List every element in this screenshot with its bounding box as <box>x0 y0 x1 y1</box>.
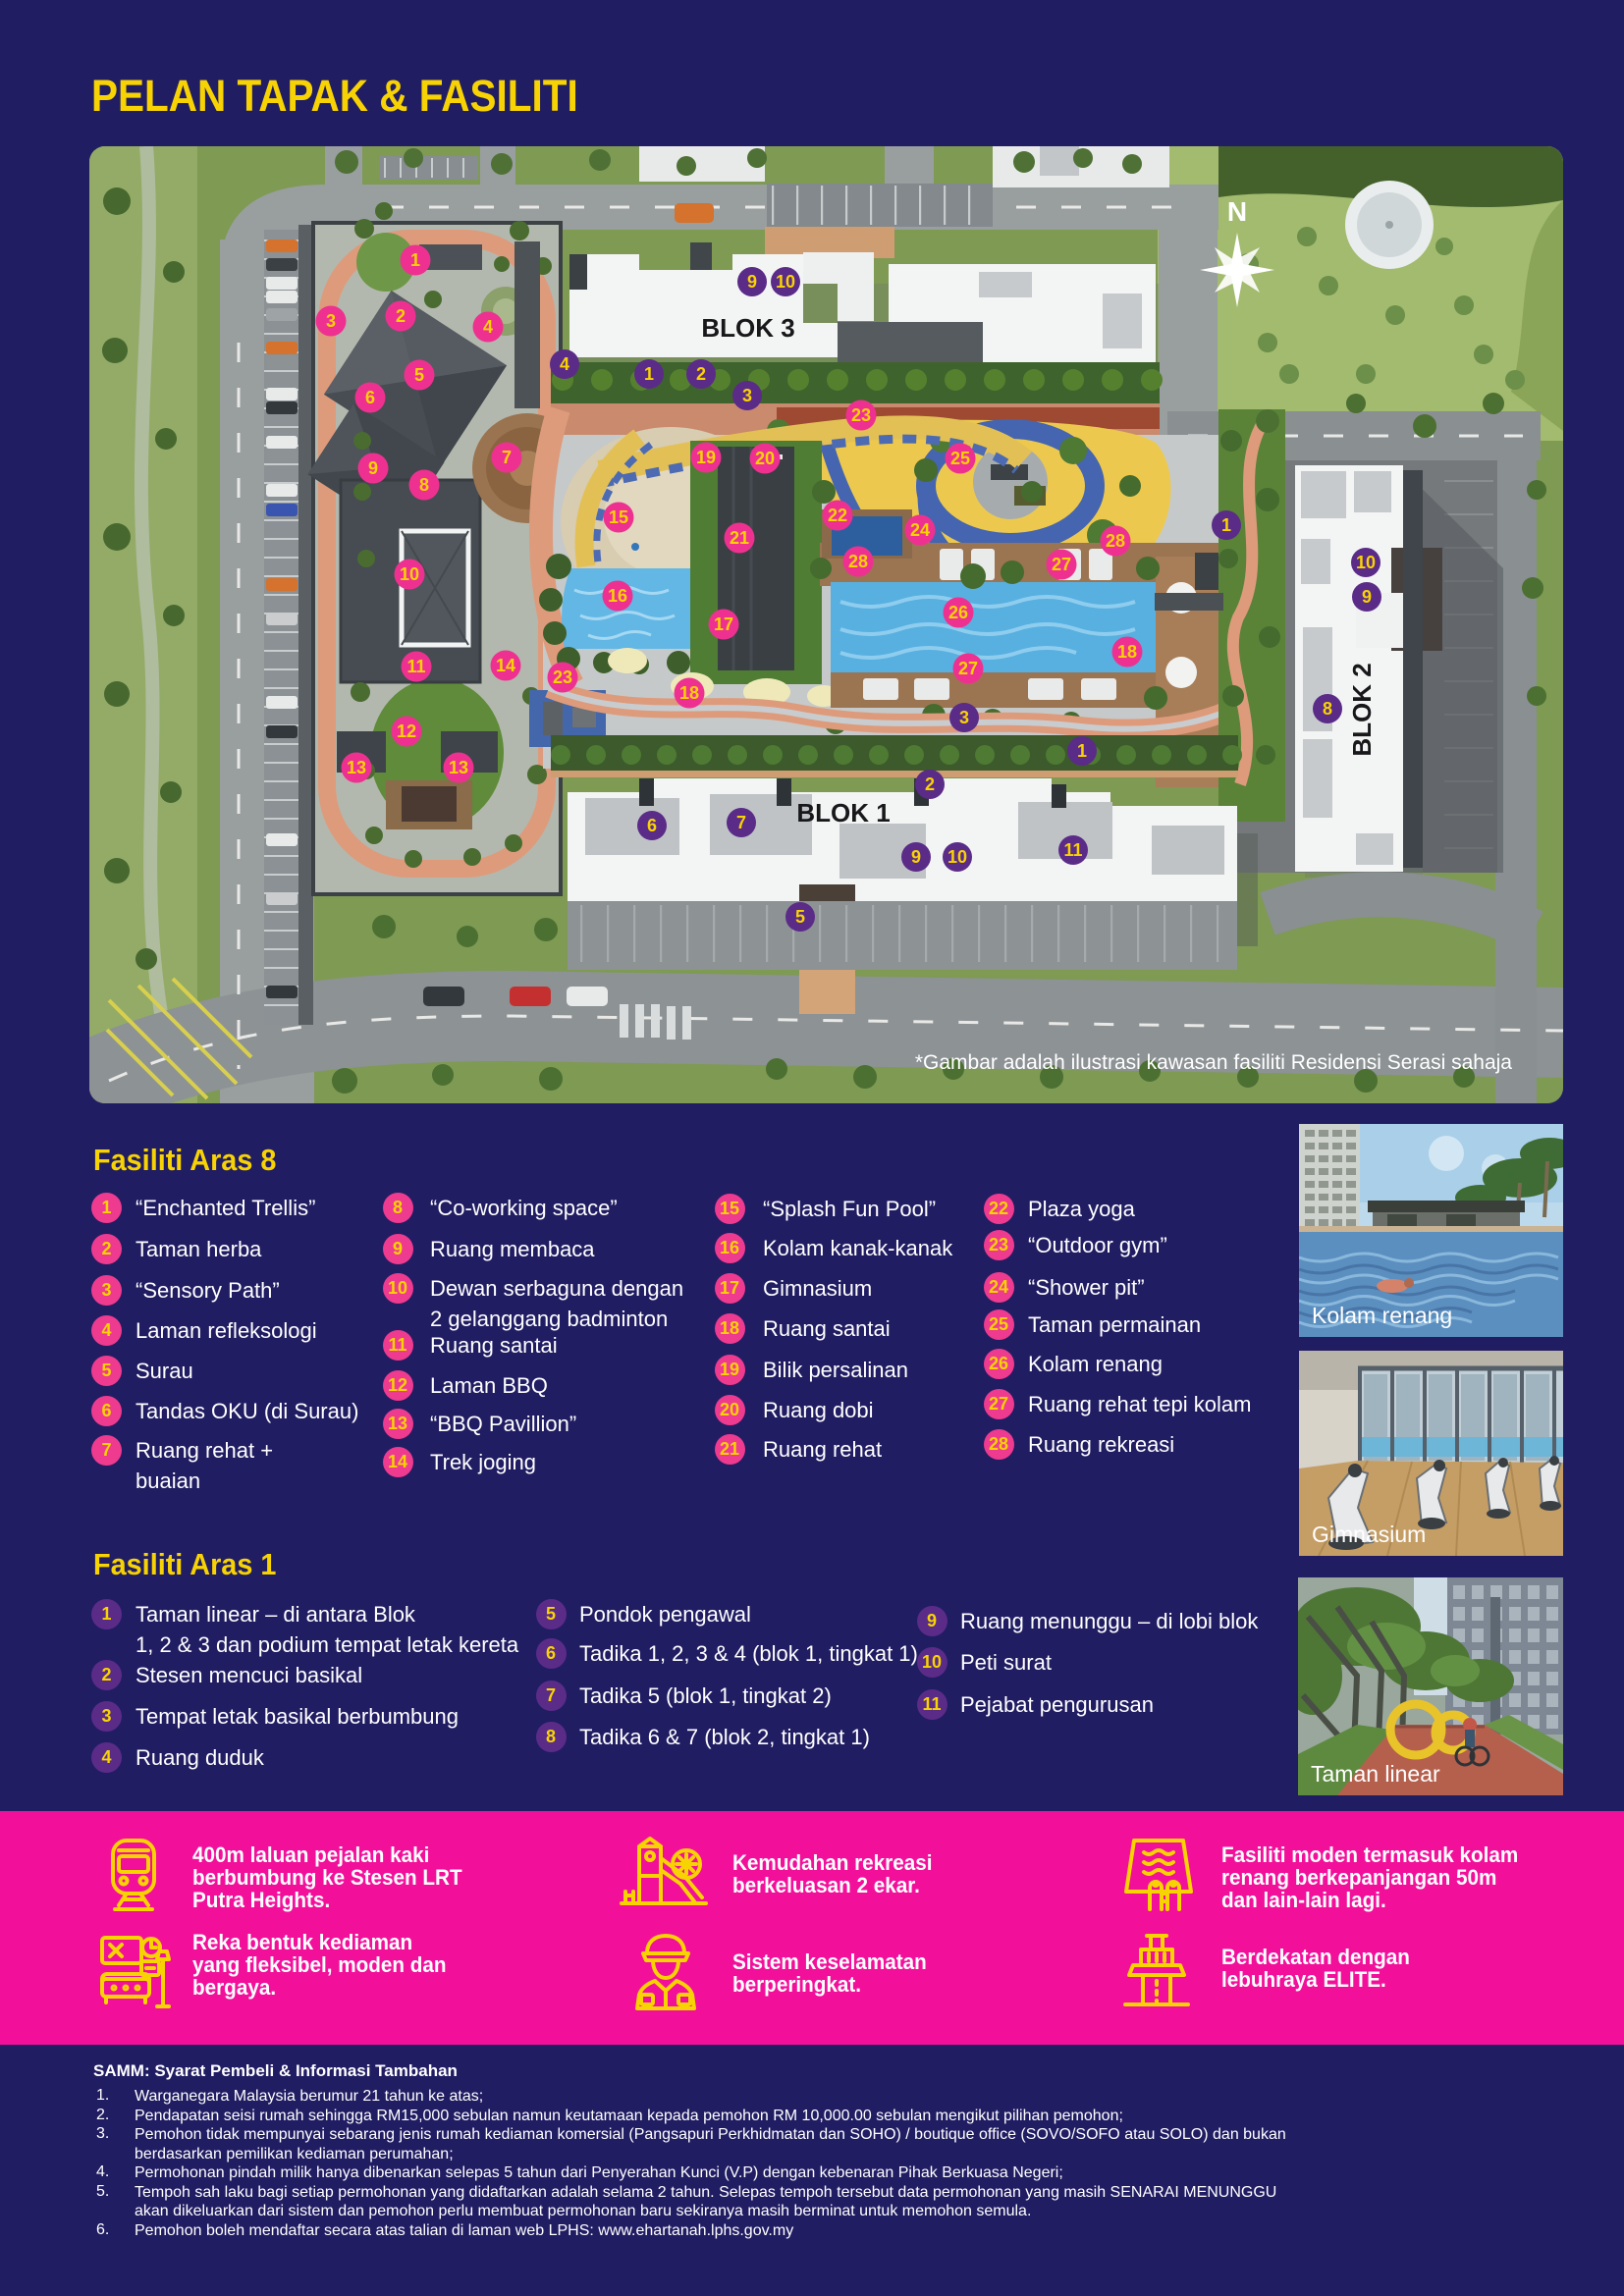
svg-text:1: 1 <box>410 250 420 270</box>
svg-text:6: 6 <box>647 816 657 835</box>
svg-text:27: 27 <box>958 659 978 678</box>
svg-text:22: 22 <box>828 506 847 525</box>
svg-text:23: 23 <box>851 405 871 425</box>
svg-text:*Gambar adalah ilustrasi kawas: *Gambar adalah ilustrasi kawasan fasilit… <box>915 1051 1512 1074</box>
svg-text:14: 14 <box>496 656 515 675</box>
svg-text:28: 28 <box>1106 531 1125 551</box>
svg-text:20: 20 <box>755 449 775 468</box>
svg-text:3: 3 <box>742 386 752 405</box>
svg-text:16: 16 <box>608 586 627 606</box>
svg-text:13: 13 <box>449 758 468 777</box>
svg-text:27: 27 <box>1052 555 1071 574</box>
svg-text:15: 15 <box>609 507 628 527</box>
svg-text:9: 9 <box>368 458 378 478</box>
svg-text:BLOK 3: BLOK 3 <box>701 313 794 343</box>
svg-text:10: 10 <box>947 847 967 867</box>
svg-text:1: 1 <box>644 364 654 384</box>
svg-text:11: 11 <box>1063 840 1082 860</box>
svg-text:19: 19 <box>696 448 716 467</box>
svg-text:9: 9 <box>747 272 757 292</box>
svg-text:5: 5 <box>414 365 424 385</box>
svg-text:BLOK 1: BLOK 1 <box>796 798 890 828</box>
svg-text:BLOK 2: BLOK 2 <box>1347 663 1377 756</box>
svg-text:25: 25 <box>950 449 970 468</box>
svg-text:1: 1 <box>1221 515 1231 535</box>
svg-text:21: 21 <box>730 528 749 548</box>
svg-text:4: 4 <box>560 354 569 374</box>
svg-text:7: 7 <box>736 813 746 832</box>
svg-text:5: 5 <box>795 907 805 927</box>
svg-text:18: 18 <box>679 683 699 703</box>
svg-text:4: 4 <box>483 317 493 337</box>
svg-text:24: 24 <box>910 520 930 540</box>
svg-text:10: 10 <box>1356 553 1376 572</box>
svg-text:2: 2 <box>396 306 406 326</box>
svg-text:28: 28 <box>848 552 868 571</box>
svg-text:10: 10 <box>776 272 795 292</box>
svg-text:26: 26 <box>948 603 968 622</box>
svg-text:9: 9 <box>911 847 921 867</box>
svg-text:6: 6 <box>365 388 375 407</box>
svg-text:10: 10 <box>400 564 419 584</box>
svg-text:1: 1 <box>1077 741 1087 761</box>
svg-text:11: 11 <box>406 657 425 676</box>
svg-text:23: 23 <box>553 667 572 687</box>
svg-text:7: 7 <box>502 448 512 467</box>
svg-text:18: 18 <box>1117 642 1137 662</box>
svg-text:8: 8 <box>419 475 429 495</box>
svg-text:2: 2 <box>696 364 706 384</box>
svg-text:9: 9 <box>1362 587 1372 607</box>
svg-text:3: 3 <box>326 311 336 331</box>
svg-text:17: 17 <box>714 614 733 634</box>
svg-text:13: 13 <box>347 758 366 777</box>
svg-text:8: 8 <box>1323 699 1332 719</box>
svg-text:N: N <box>1227 196 1247 227</box>
svg-text:12: 12 <box>397 721 416 741</box>
svg-text:2: 2 <box>925 774 935 794</box>
svg-text:3: 3 <box>959 708 969 727</box>
